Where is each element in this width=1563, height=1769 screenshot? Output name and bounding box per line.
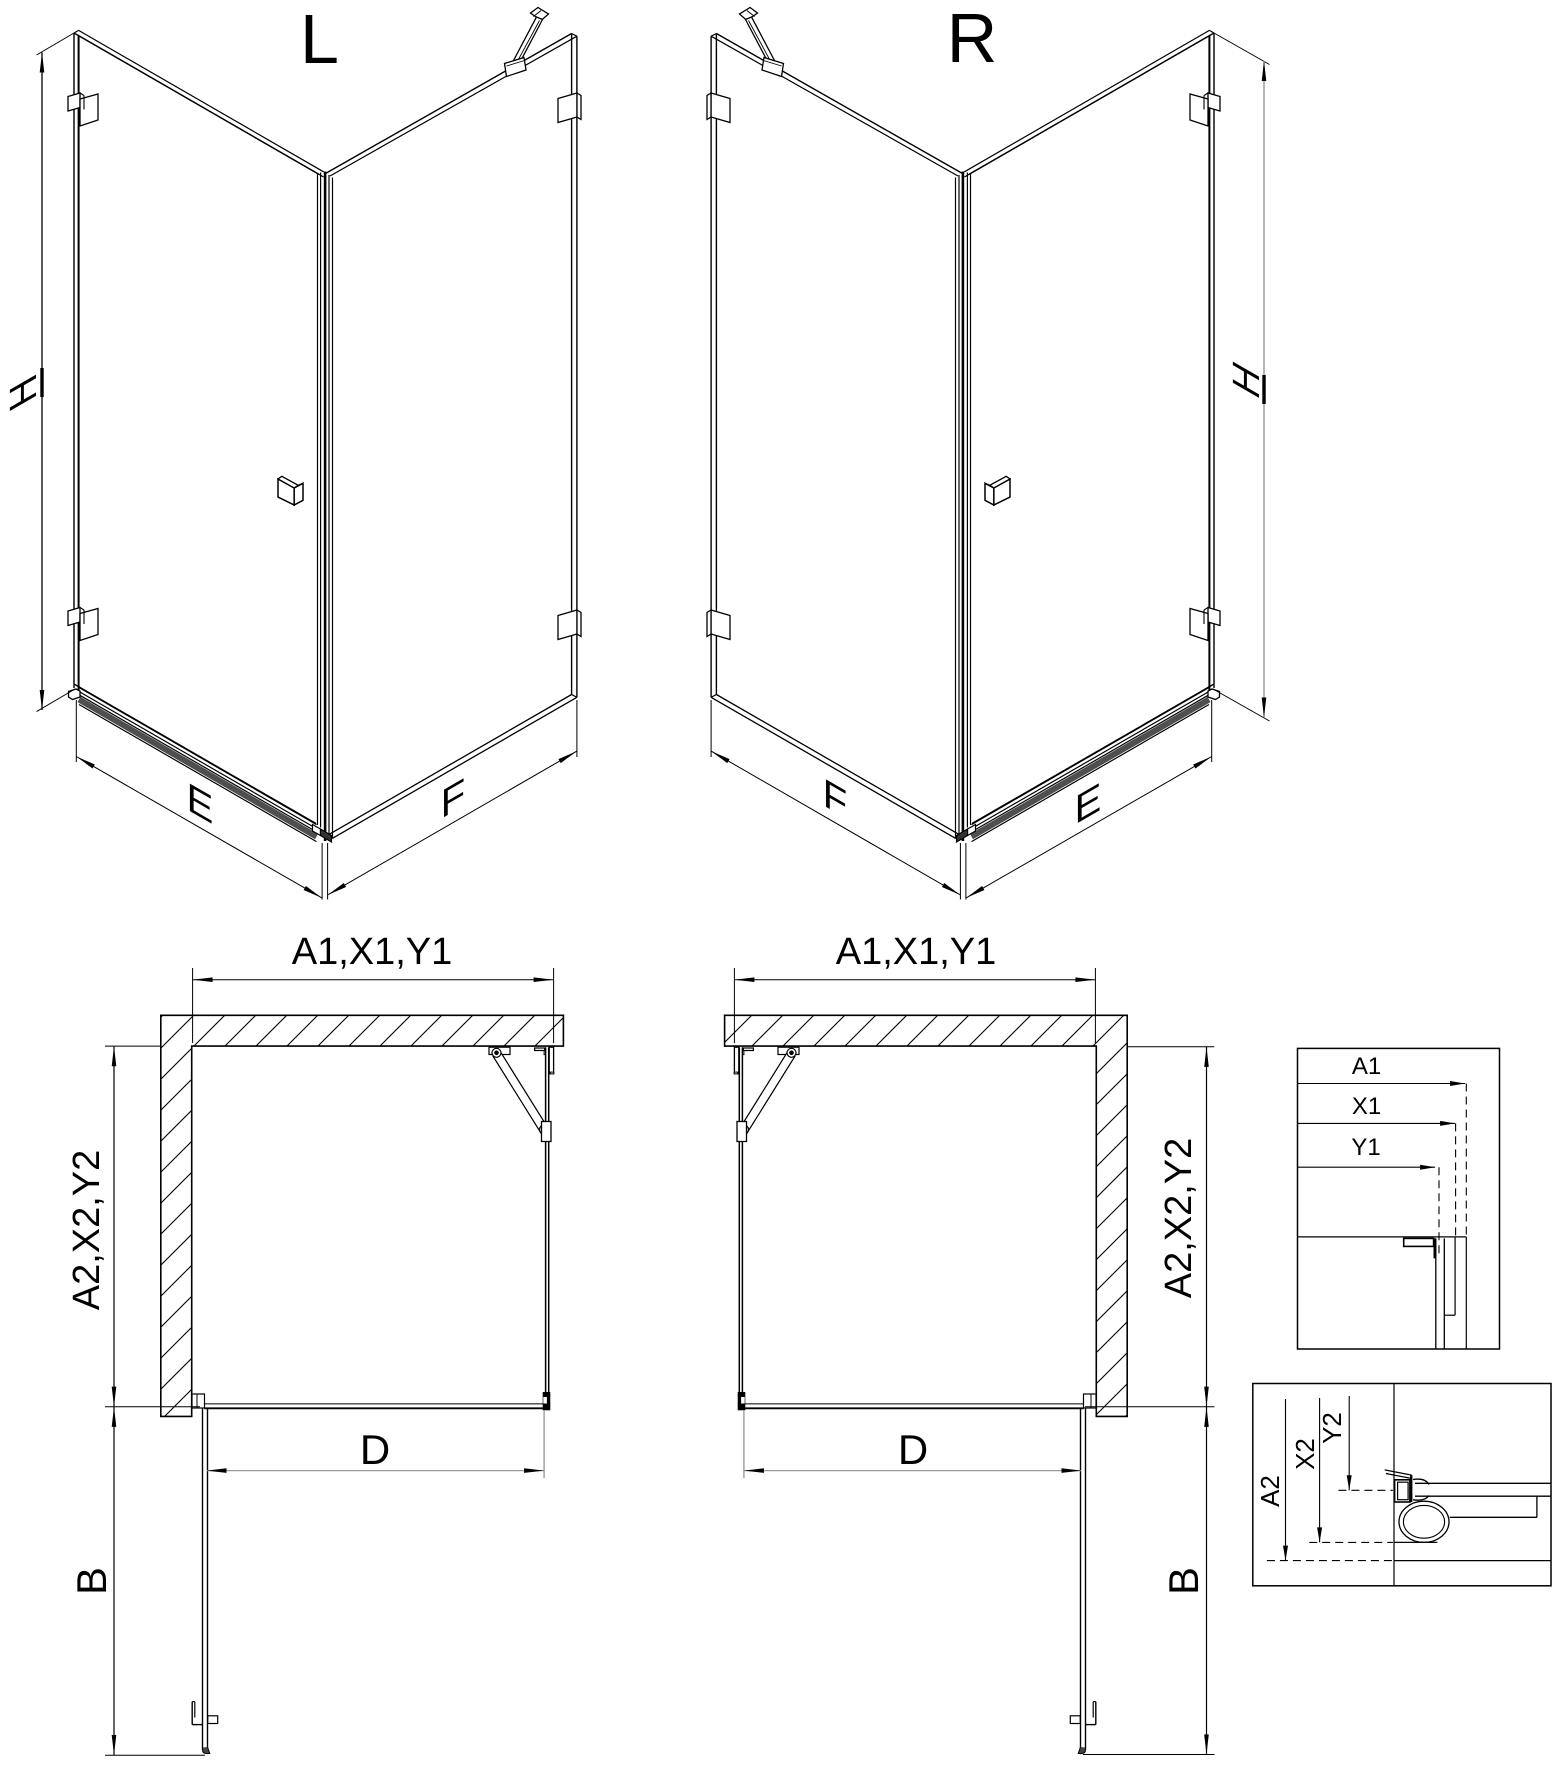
svg-text:A1,X1,Y1: A1,X1,Y1 (836, 931, 997, 973)
svg-text:A2,X2,Y2: A2,X2,Y2 (1158, 1138, 1200, 1299)
svg-text:D: D (360, 1426, 390, 1473)
svg-text:A2,X2,Y2: A2,X2,Y2 (66, 1150, 108, 1311)
svg-text:X2: X2 (1290, 1438, 1320, 1470)
svg-text:A1,X1,Y1: A1,X1,Y1 (292, 931, 453, 973)
svg-text:D: D (898, 1426, 928, 1473)
svg-text:R: R (947, 0, 998, 77)
svg-text:Y1: Y1 (1351, 1134, 1380, 1161)
svg-text:Y2: Y2 (1317, 1412, 1347, 1444)
svg-text:B: B (1160, 1567, 1207, 1595)
svg-text:B: B (68, 1567, 115, 1595)
svg-text:A1: A1 (1352, 1053, 1381, 1080)
svg-text:A2: A2 (1255, 1475, 1285, 1507)
svg-text:L: L (300, 0, 339, 78)
svg-text:X1: X1 (1352, 1093, 1381, 1120)
